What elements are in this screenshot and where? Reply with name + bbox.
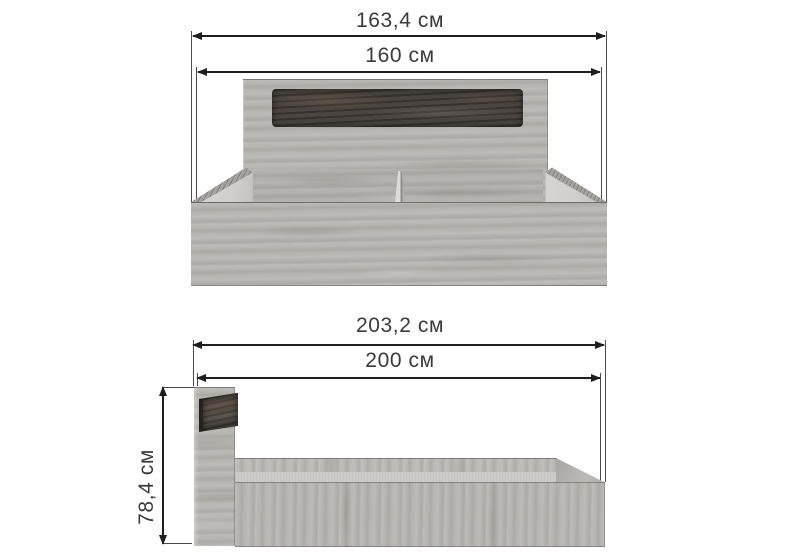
height-connector-line [163,387,196,388]
side-overall-length-label: 203,2 см [356,314,444,338]
side-inner-length-label: 200 см [365,349,434,373]
headboard-insert-side [199,393,238,432]
arrowhead-right-icon [595,341,605,349]
side-overall-length-dim-line [193,344,604,346]
arrowhead-left-icon [192,32,202,40]
extension-line [196,67,197,202]
extension-line [191,31,192,202]
side-height-label: 78,4 см [135,449,159,525]
arrowhead-right-icon [596,32,606,40]
extension-line [600,373,601,482]
extension-line [606,31,607,202]
front-inner-width-label: 160 см [365,44,434,68]
front-overall-width-label: 163,4 см [356,9,444,33]
mattress-platform-side [235,472,557,482]
height-connector-line [163,543,192,544]
headboard-insert [272,89,523,127]
bed-dimension-diagram: 163,4 см 160 см [0,0,800,560]
extension-line [601,67,602,202]
arrowhead-right-icon [591,68,601,76]
far-rail-top-edge [235,458,557,473]
extension-line [605,340,606,482]
mattress-platform [248,169,543,202]
bed-side-panel [235,482,605,547]
footboard-edge [556,458,606,483]
front-overall-width-dim-line [193,35,605,37]
front-inner-width-dim-line [198,71,600,73]
side-inner-length-dim-line [197,377,600,379]
arrowhead-left-icon [197,68,207,76]
bed-frame-front-panel [191,202,607,286]
extension-line [193,340,194,386]
extension-line [197,373,198,386]
side-height-dim-line [162,387,164,544]
